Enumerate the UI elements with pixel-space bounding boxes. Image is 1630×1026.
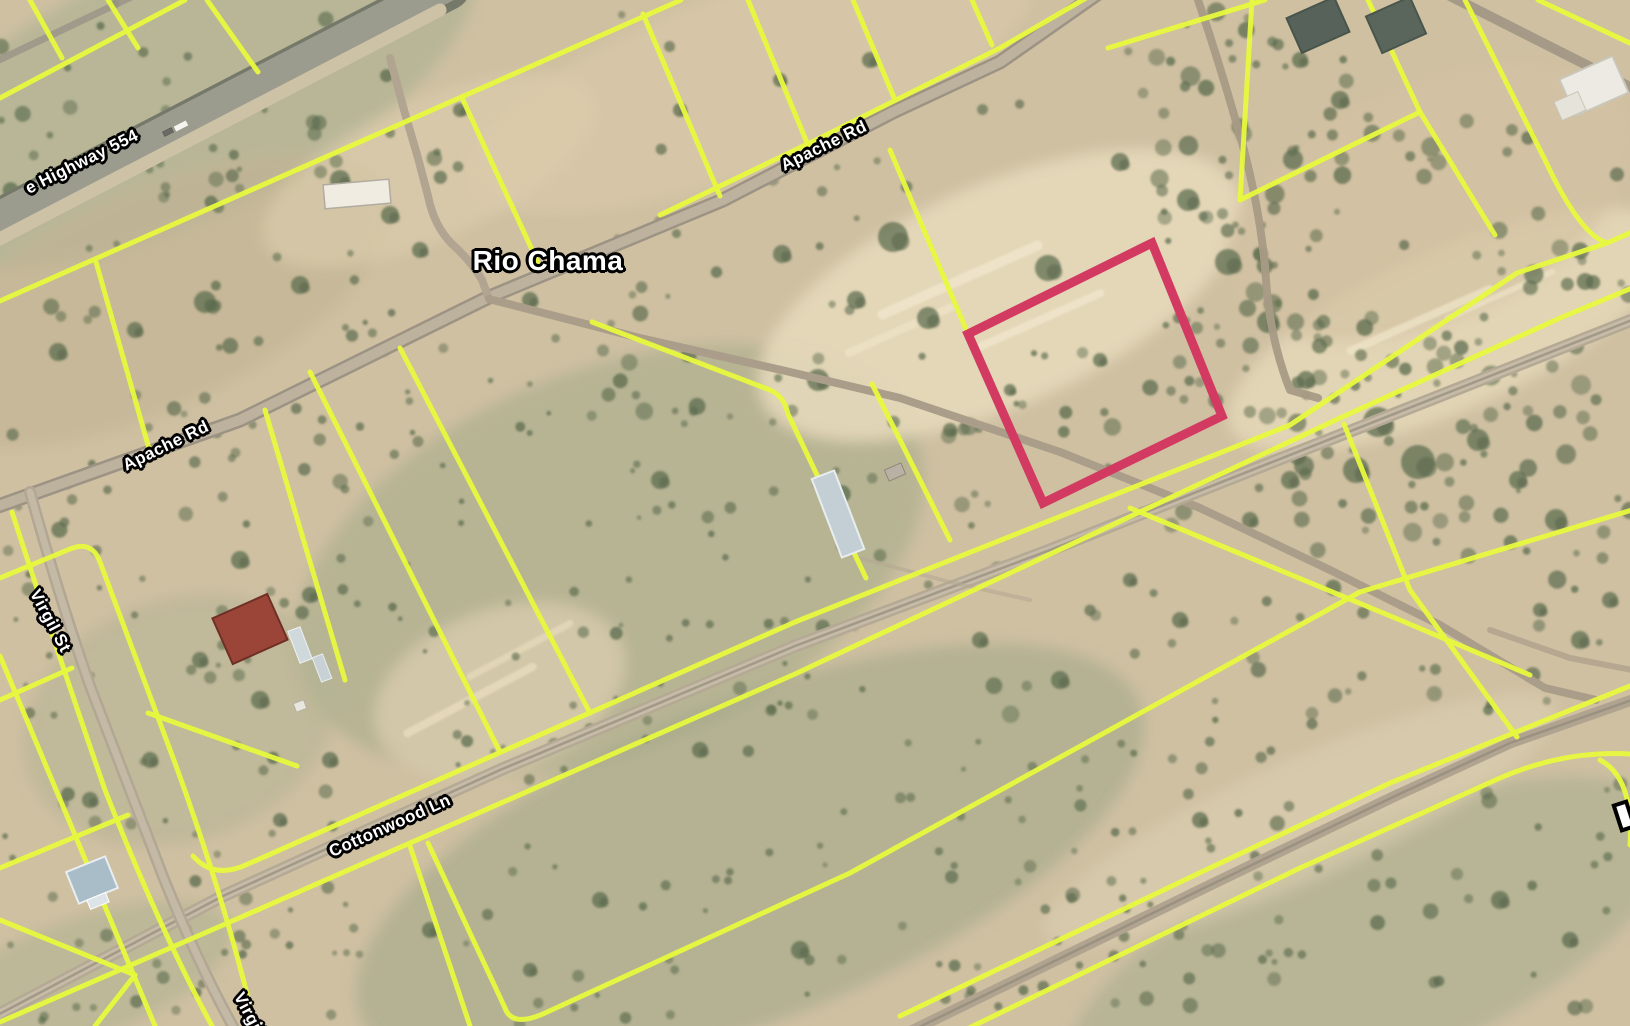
aerial-map (0, 0, 1630, 1026)
map-canvas[interactable]: e Highway 554 Apache Rd Apache Rd Virgil… (0, 0, 1630, 1026)
greenhouse-building (323, 179, 391, 209)
